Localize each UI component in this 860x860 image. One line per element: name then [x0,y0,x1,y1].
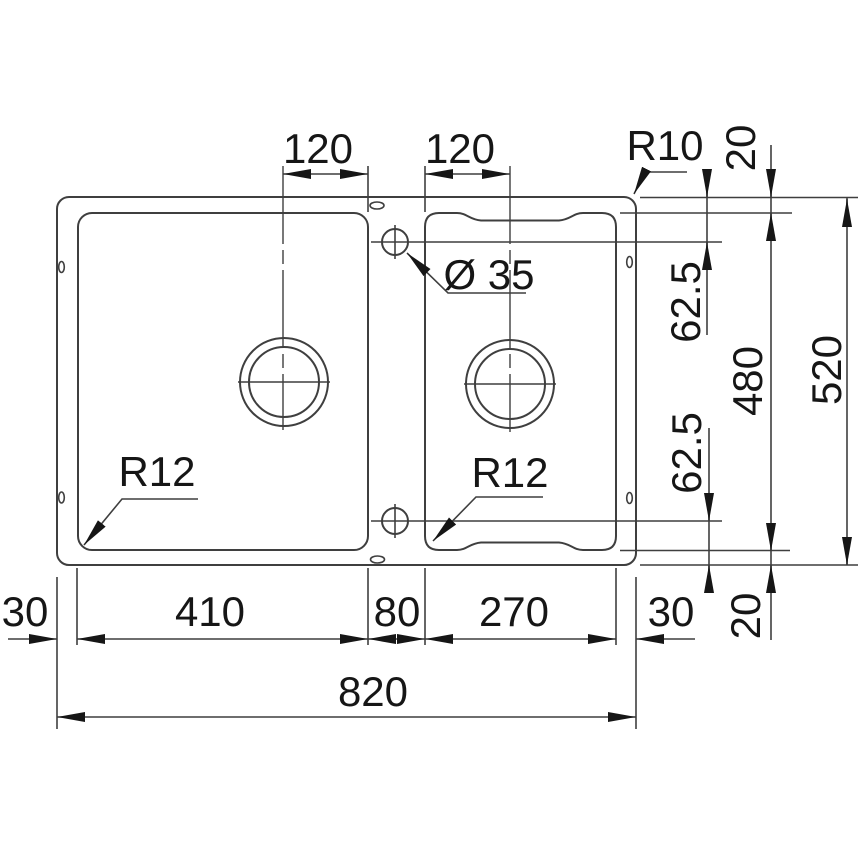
label-410: 410 [175,588,245,635]
leader-r10 [634,172,687,194]
label-r10: R10 [626,122,703,169]
label-r12-left: R12 [118,448,195,495]
sink-outer-edge [57,197,636,565]
leader-r12-right [433,497,543,541]
leader-r12-left [84,499,198,545]
mounting-slot-right-upper [627,257,633,268]
sink-body [57,197,636,565]
label-30-right: 30 [648,588,695,635]
mounting-slot-right-lower [627,493,633,504]
label-270: 270 [479,588,549,635]
label-520: 520 [803,335,850,405]
label-120-left: 120 [283,125,353,172]
mounting-slot-left-upper [59,262,65,273]
label-80: 80 [374,588,421,635]
label-hole-diameter: Ø 35 [443,251,534,298]
sink-technical-drawing: 120 120 R10 20 Ø 35 62.5 480 520 62.5 20… [0,0,860,860]
label-62-bottom: 62.5 [663,412,710,494]
mounting-slot-top [370,202,384,209]
mounting-slot-bottom [371,556,385,563]
left-drain [238,338,330,426]
label-480: 480 [724,346,771,416]
label-820: 820 [338,668,408,715]
mounting-slot-left-lower [59,492,65,503]
label-120-right: 120 [425,125,495,172]
drawing-canvas: 120 120 R10 20 Ø 35 62.5 480 520 62.5 20… [0,0,860,860]
label-20-bottom: 20 [722,593,769,640]
label-30-left: 30 [2,588,49,635]
label-20-top: 20 [717,125,764,172]
label-62-top: 62.5 [662,261,709,343]
label-r12-right: R12 [471,449,548,496]
